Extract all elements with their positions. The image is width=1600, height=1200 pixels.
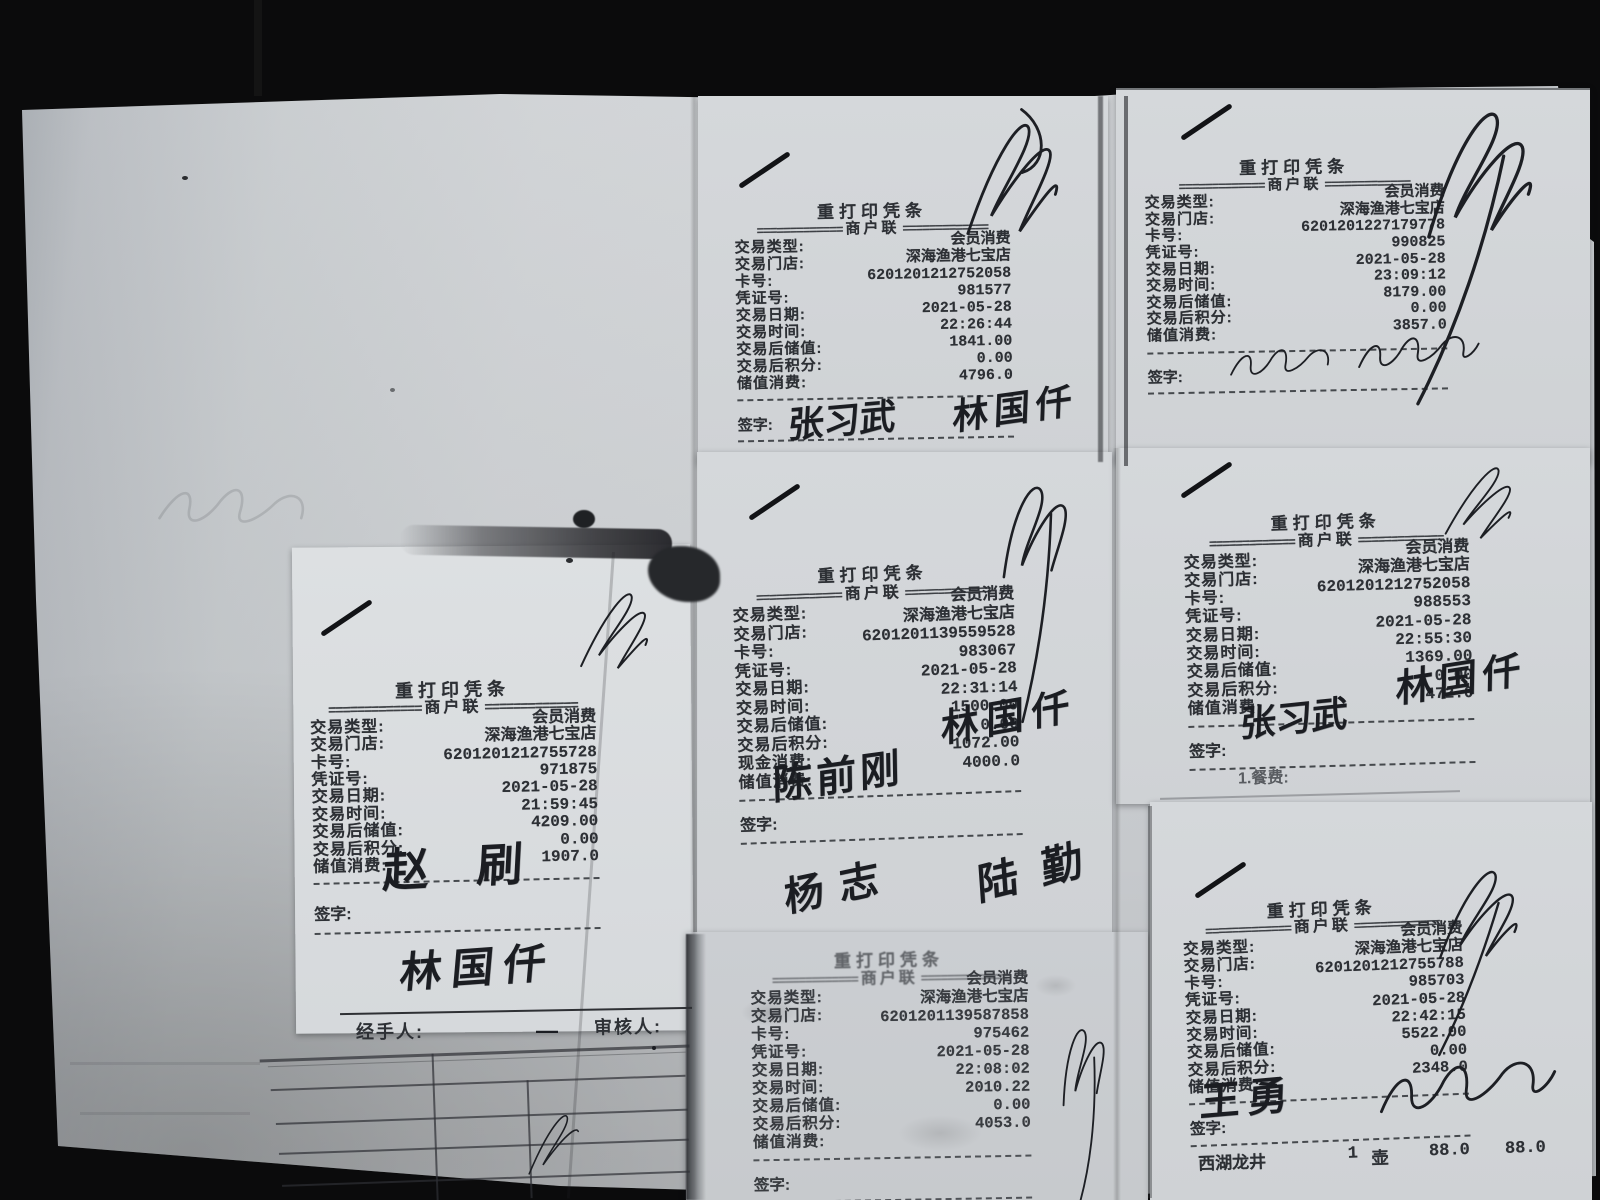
field-value: 22:55:30 — [1395, 629, 1472, 649]
ghost-mark — [80, 1112, 250, 1115]
ghost-scribble — [140, 470, 340, 540]
separator: ============= — [1179, 177, 1265, 195]
ink-smudge — [400, 525, 672, 560]
field-value: 1841.00 — [949, 333, 1012, 351]
field-label: 卡号: — [1145, 228, 1183, 245]
sign-label: 签字: — [738, 417, 773, 435]
expense-form-grid — [259, 1039, 694, 1200]
item-name: 西湖龙井 — [1198, 1146, 1317, 1175]
copy-label: 商户联 — [1264, 176, 1324, 194]
separator: ============= — [772, 971, 858, 990]
separator: ============= — [1205, 920, 1291, 941]
field-label: 卡号: — [734, 644, 775, 664]
receipt-fields: 交易类型:会员消费交易门店:深海渔港七宝店卡号:6201201139587858… — [750, 986, 1031, 1153]
field-label: 交易门店: — [735, 255, 805, 273]
copy-label: 商户联 — [841, 583, 905, 604]
field-label: 凭证号: — [311, 771, 369, 790]
field-value: 975462 — [973, 1024, 1029, 1043]
signature-scribble — [939, 90, 1091, 276]
field-label: 卡号: — [311, 754, 352, 772]
photo-of-receipts: 重打印凭条 =============商户联============= 交易类型… — [0, 0, 1600, 1200]
field-label: 交易门店: — [1183, 956, 1256, 976]
separator: ============= — [756, 586, 842, 607]
field-label: 卡号: — [1184, 974, 1224, 993]
sign-label: 签字: — [740, 817, 778, 837]
field-label: 储值消费: — [753, 1133, 825, 1152]
field-value: 0.00 — [993, 1096, 1031, 1115]
field-label: 储值消费: — [313, 857, 388, 876]
receipt-field-row: 储值消费:4053.0 — [753, 1130, 1031, 1153]
handler-label: 经手人: — [356, 1018, 424, 1044]
field-value: 会员消费 — [966, 970, 1028, 989]
separator: ============= — [328, 700, 422, 719]
field-label: 交易日期: — [312, 788, 387, 807]
separator: ============= — [757, 221, 843, 239]
field-value: 981577 — [957, 282, 1011, 300]
signature-handwritten: 张习武 — [787, 387, 897, 449]
field-label: 交易类型: — [735, 238, 805, 256]
item-amount: 88.0 — [1470, 1139, 1547, 1166]
field-label: 交易后积分: — [753, 1115, 842, 1135]
field-value: 22:26:44 — [940, 316, 1012, 334]
field-value: 2021-05-28 — [936, 1042, 1029, 1062]
grid-line — [279, 1139, 689, 1155]
sign-label: 签字: — [754, 1177, 790, 1196]
signature-scribble — [1222, 324, 1348, 396]
field-value: 22:08:02 — [955, 1060, 1030, 1079]
receipt-bottom-middle: 重打印凭条 =============商户联============= 交易类型… — [750, 950, 1032, 1200]
field-label: 交易门店: — [751, 1007, 823, 1026]
field-label: 交易门店: — [733, 624, 808, 645]
ghost-mark — [70, 1062, 260, 1065]
field-label: 交易类型: — [1184, 553, 1259, 573]
field-label: 交易日期: — [1186, 626, 1261, 646]
field-label: 储值消费: — [737, 374, 807, 392]
signature-handwritten: 王勇 — [1199, 1062, 1297, 1129]
field-label: 交易后储值: — [736, 340, 822, 358]
field-label: 凭证号: — [735, 289, 789, 307]
speck — [182, 176, 188, 180]
field-label: 交易类型: — [750, 989, 822, 1008]
field-label: 储值消费: — [1147, 327, 1217, 345]
field-value: 4000.0 — [962, 752, 1020, 772]
background-edge — [254, 0, 262, 96]
meal-fee-note: 1.餐费: — [1238, 764, 1289, 789]
copy-label: 商户联 — [1294, 531, 1358, 551]
field-label: 凭证号: — [1185, 991, 1241, 1010]
copy-label: 商户联 — [842, 219, 902, 237]
grid-line — [432, 1053, 439, 1200]
field-label: 交易后积分: — [737, 357, 823, 375]
field-label: 凭证号: — [1145, 245, 1199, 263]
separator: ============= — [1209, 533, 1295, 554]
field-label: 交易时间: — [312, 805, 387, 824]
ink-dot — [652, 1046, 656, 1050]
field-label: 凭证号: — [735, 661, 793, 681]
signature-handwritten: 林国仟 — [397, 928, 558, 1000]
field-label: 交易时间: — [752, 1079, 824, 1098]
sign-label: 签字: — [1148, 370, 1183, 387]
item-unit: 壶 — [1358, 1143, 1403, 1169]
field-label: 交易日期: — [752, 1061, 824, 1080]
field-value: 深海渔港七宝店 — [920, 988, 1029, 1008]
field-label: 交易日期: — [736, 306, 806, 324]
grid-line — [282, 1171, 690, 1187]
signature-handwritten: 赵刷 — [381, 825, 572, 901]
field-value: 0.00 — [977, 350, 1013, 368]
sign-label: 签字: — [1189, 743, 1227, 762]
item-qty: 1 — [1316, 1144, 1359, 1170]
field-value: 2021-05-28 — [922, 299, 1012, 318]
reviewer-label: 审核人: — [594, 1012, 662, 1039]
field-label: 卡号: — [735, 273, 773, 291]
ink-dot — [573, 510, 595, 528]
grid-line — [271, 1075, 686, 1091]
field-label: 交易门店: — [311, 736, 386, 755]
copy-label: 商户联 — [1291, 917, 1355, 937]
grid-line — [276, 1109, 688, 1125]
field-label: 卡号: — [1185, 590, 1226, 609]
field-value: 2010.22 — [965, 1078, 1030, 1097]
speck — [390, 388, 395, 392]
field-label: 交易后储值: — [752, 1097, 841, 1117]
field-label: 卡号: — [751, 1026, 790, 1045]
field-label: 交易门店: — [1184, 571, 1259, 591]
signature-row: 签字: — [753, 1155, 1032, 1200]
field-label: 凭证号: — [1185, 608, 1243, 628]
item-price: 88.0 — [1402, 1141, 1471, 1168]
handwritten-dash: — — [536, 1018, 558, 1044]
copy-label: 商户联 — [421, 699, 484, 718]
field-label: 交易时间: — [736, 323, 806, 341]
field-label: 凭证号: — [751, 1043, 807, 1062]
sign-label: 签字: — [314, 907, 352, 925]
field-label: 交易后积分: — [1147, 310, 1233, 328]
field-label: 交易类型: — [310, 718, 385, 737]
field-value: 988553 — [1413, 593, 1471, 613]
field-value: 4053.0 — [975, 1114, 1031, 1133]
copy-label: 商户联 — [858, 969, 921, 988]
